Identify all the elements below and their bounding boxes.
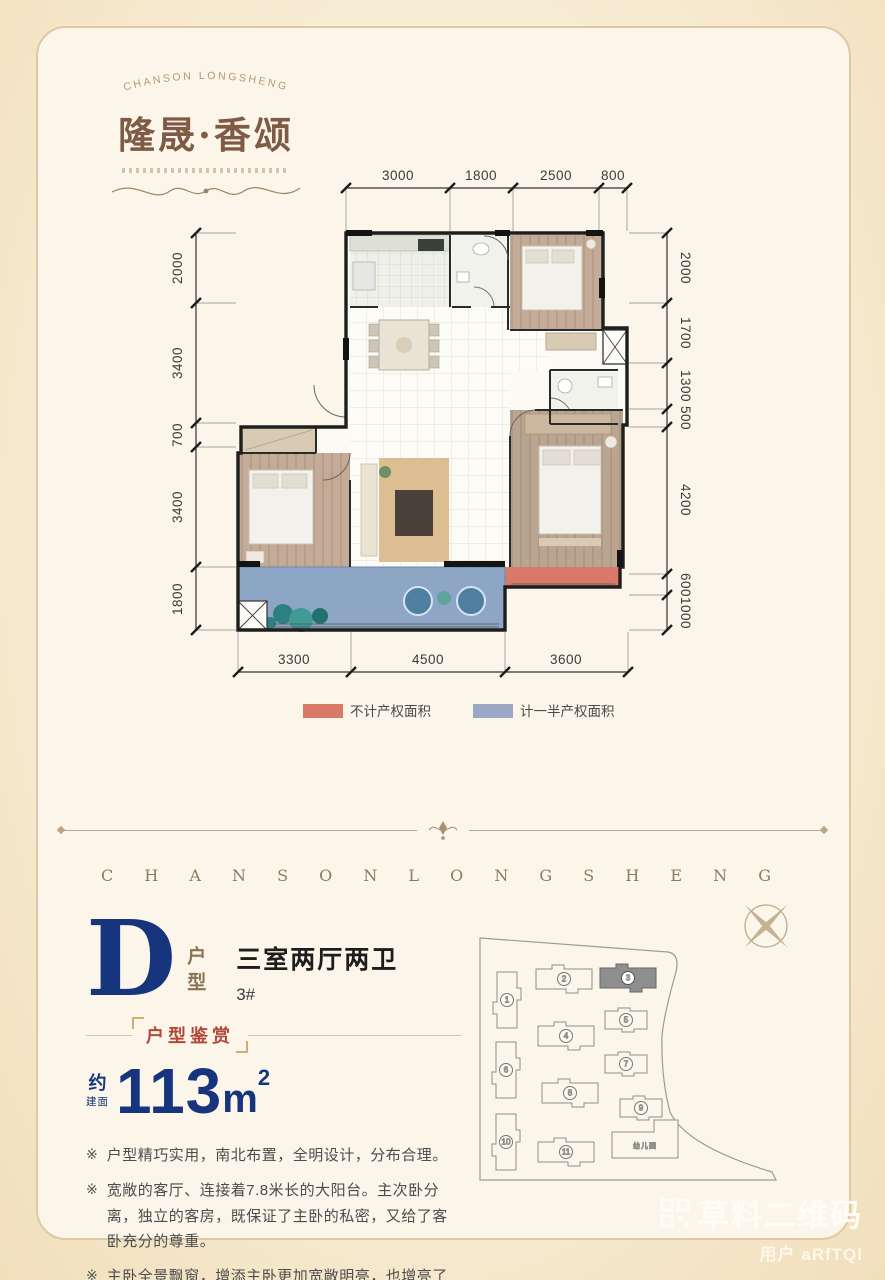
- feature-text: 主卧全景飘窗，增添主卧更加宽敞明亮，也增亮了丰富多彩的人生。: [107, 1264, 462, 1280]
- dim-label: 3400: [170, 347, 185, 379]
- feature-item: ※ 主卧全景飘窗，增添主卧更加宽敞明亮，也增亮了丰富多彩的人生。: [86, 1264, 462, 1280]
- brand-arc-label: CHANSON LONGSHENG: [122, 70, 290, 94]
- dim-label: 3300: [278, 652, 310, 667]
- area-superscript: 2: [258, 1065, 270, 1091]
- wardrobe: [546, 333, 596, 350]
- legend-label: 不计产权面积: [350, 703, 431, 719]
- compass-icon: [743, 903, 790, 950]
- svg-text:3: 3: [626, 974, 631, 983]
- dim-label: 1300: [678, 370, 693, 402]
- living-room: [361, 458, 449, 562]
- site-buildings: 1 2 3 4 5 6 7: [492, 964, 678, 1170]
- svg-text:CHANSON LONGSHENG: CHANSON LONGSHENG: [122, 70, 290, 94]
- area-prefix: 建面: [86, 1094, 109, 1109]
- dim-label: 2000: [170, 252, 185, 284]
- svg-text:8: 8: [568, 1089, 573, 1098]
- brand-name-cn: 隆晟·香颂: [70, 105, 342, 159]
- dim-label: 500: [678, 406, 693, 430]
- floorplan-legend: 不计产权面积 计一半产权面积: [303, 703, 615, 719]
- bracket-corner: [236, 1041, 248, 1053]
- svg-text:幼儿园: 幼儿园: [633, 1141, 657, 1150]
- dim-label: 3000: [382, 168, 414, 183]
- qr-code-icon: [660, 1198, 690, 1228]
- building: 4: [538, 1022, 594, 1050]
- dim-label: 2000: [678, 252, 693, 284]
- dining-table: [369, 320, 439, 370]
- brand-name-spaced: C H A N S O N L O N G S H E N G: [58, 866, 827, 885]
- divider-endcap: [57, 826, 65, 834]
- bullet-marker: ※: [86, 1181, 98, 1255]
- svg-text:4: 4: [564, 1032, 569, 1041]
- dim-label: 4500: [412, 652, 444, 667]
- legend-swatch-blue: [473, 704, 513, 718]
- section-label: 户型鉴赏: [132, 1017, 248, 1053]
- section-label-row: 户型鉴赏: [86, 1017, 462, 1053]
- dim-label: 3600: [550, 652, 582, 667]
- dim-label: 1800: [170, 583, 185, 615]
- bullet-marker: ※: [86, 1146, 98, 1169]
- dim-label: 2500: [540, 168, 572, 183]
- unit-type-letter: D: [86, 916, 176, 1001]
- bullet-marker: ※: [86, 1267, 98, 1280]
- building: 11: [538, 1138, 594, 1166]
- building: 7: [605, 1052, 647, 1076]
- dims-right: [629, 228, 672, 635]
- brand-arc-text: CHANSON LONGSHENG: [80, 58, 332, 100]
- dims-left: [191, 228, 236, 635]
- svg-text:7: 7: [624, 1060, 629, 1069]
- divider-line: [469, 830, 822, 831]
- bathroom-top: [452, 235, 508, 307]
- feature-text: 户型精巧实用，南北布置，全明设计，分布合理。: [107, 1143, 448, 1169]
- svg-text:6: 6: [504, 1066, 509, 1075]
- building: 10: [492, 1114, 520, 1170]
- dim-label: 800: [601, 168, 625, 183]
- poster: CHANSON LONGSHENG 隆晟·香颂: [0, 0, 885, 1280]
- kitchen: [350, 235, 450, 307]
- floorplan: 3000 1800 2500 800 2000 3400 700 3400: [118, 158, 748, 775]
- building: 2: [536, 965, 592, 993]
- svg-text:11: 11: [562, 1148, 571, 1157]
- building-highlighted: 3: [600, 964, 656, 992]
- legend-label: 计一半产权面积: [520, 703, 615, 719]
- siteplan-drawing: 1 2 3 4 5 6 7: [460, 886, 824, 1208]
- legend-swatch-orange: [303, 704, 343, 718]
- dim-label: 600: [678, 573, 693, 597]
- dim-label: 4200: [678, 484, 693, 516]
- unit-type-label: 户型: [181, 946, 208, 998]
- unit-info: D 户型 三室两厅两卫 3# 户型鉴赏 约 建面 113 m 2: [86, 916, 462, 1280]
- divider-line: [64, 830, 417, 831]
- apartment: [238, 230, 627, 632]
- area-approx: 约: [86, 1074, 109, 1092]
- dims-top: [341, 183, 632, 231]
- section-divider: C H A N S O N L O N G S H E N G: [58, 818, 827, 885]
- watermark-user: 用户 aRfTQl: [660, 1240, 863, 1265]
- balcony: [238, 567, 505, 632]
- feature-list: ※ 户型精巧实用，南北布置，全明设计，分布合理。 ※ 宽敞的客厅、连接着7.8米…: [86, 1143, 462, 1280]
- building: 8: [542, 1079, 598, 1107]
- divider-endcap: [820, 826, 828, 834]
- dim-label: 1000: [678, 597, 693, 629]
- area-unit: m: [222, 1081, 258, 1117]
- area-row: 约 建面 113 m 2: [86, 1067, 462, 1117]
- building: 1: [493, 972, 521, 1028]
- building: 6: [492, 1042, 520, 1098]
- feature-item: ※ 户型精巧实用，南北布置，全明设计，分布合理。: [86, 1143, 462, 1169]
- siteplan: 1 2 3 4 5 6 7: [460, 886, 824, 1213]
- feature-text: 宽敞的客厅、连接着7.8米长的大阳台。主次卧分离，独立的客房，既保证了主卧的私密…: [107, 1178, 462, 1255]
- dim-label: 1800: [465, 168, 497, 183]
- unit-layout-name: 三室两厅两卫: [236, 940, 398, 976]
- watermark: 草料二维码 用户 aRfTQl: [660, 1190, 863, 1265]
- unit-building-no: 3#: [236, 985, 398, 1005]
- svg-text:2: 2: [562, 975, 567, 984]
- dim-label: 1700: [678, 317, 693, 349]
- svg-text:5: 5: [624, 1016, 629, 1025]
- dim-label: 700: [170, 423, 185, 447]
- building: 5: [605, 1008, 647, 1032]
- building: 9: [620, 1096, 662, 1120]
- svg-text:9: 9: [639, 1104, 644, 1113]
- bracket-corner: [132, 1017, 144, 1029]
- dim-label: 3400: [170, 491, 185, 523]
- area-value: 113: [116, 1067, 222, 1117]
- feature-item: ※ 宽敞的客厅、连接着7.8米长的大阳台。主次卧分离，独立的客房，既保证了主卧的…: [86, 1178, 462, 1255]
- svg-text:10: 10: [502, 1138, 511, 1147]
- bedroom-master: [510, 410, 623, 567]
- divider-ornament: [423, 818, 463, 842]
- watermark-title: 草料二维码: [698, 1190, 863, 1235]
- kindergarten-building: 幼儿园: [612, 1120, 678, 1158]
- shaft: [603, 330, 627, 364]
- svg-text:1: 1: [505, 996, 510, 1005]
- floorplan-drawing: 3000 1800 2500 800 2000 3400 700 3400: [118, 158, 748, 770]
